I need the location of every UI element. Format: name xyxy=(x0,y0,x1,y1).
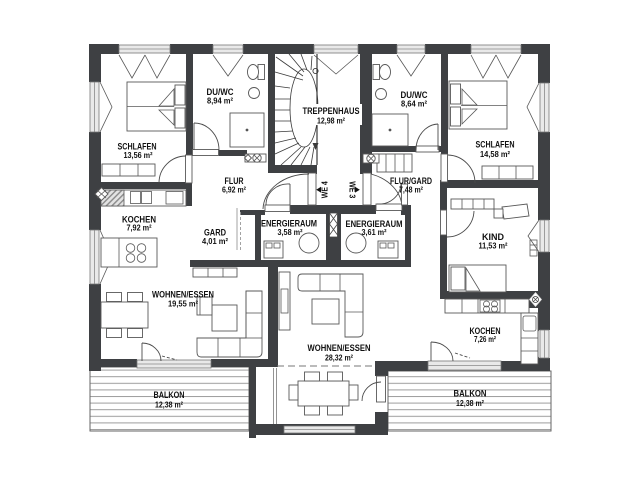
svg-text:14,58 m²: 14,58 m² xyxy=(480,149,510,159)
svg-text:7,92 m²: 7,92 m² xyxy=(127,223,152,233)
svg-text:3,58 m²: 3,58 m² xyxy=(278,227,303,237)
svg-text:13,56 m²: 13,56 m² xyxy=(124,150,153,160)
svg-text:12,38 m²: 12,38 m² xyxy=(456,398,484,408)
svg-text:7,26 m²: 7,26 m² xyxy=(474,334,496,344)
svg-text:7,48 m²: 7,48 m² xyxy=(399,185,423,195)
svg-text:8,94 m²: 8,94 m² xyxy=(207,96,233,106)
svg-text:8,64 m²: 8,64 m² xyxy=(401,99,427,109)
svg-text:12,38 m²: 12,38 m² xyxy=(155,400,183,410)
svg-text:6,92 m²: 6,92 m² xyxy=(222,185,246,195)
svg-text:3,61 m²: 3,61 m² xyxy=(362,227,387,237)
svg-text:28,32 m²: 28,32 m² xyxy=(325,353,353,363)
svg-text:WE 4: WE 4 xyxy=(321,181,330,198)
svg-text:4,01 m²: 4,01 m² xyxy=(202,236,228,246)
svg-text:19,55 m²: 19,55 m² xyxy=(168,299,198,309)
svg-text:11,53 m²: 11,53 m² xyxy=(479,241,508,251)
svg-text:WE 3: WE 3 xyxy=(348,181,357,198)
svg-text:12,98 m²: 12,98 m² xyxy=(317,116,345,126)
